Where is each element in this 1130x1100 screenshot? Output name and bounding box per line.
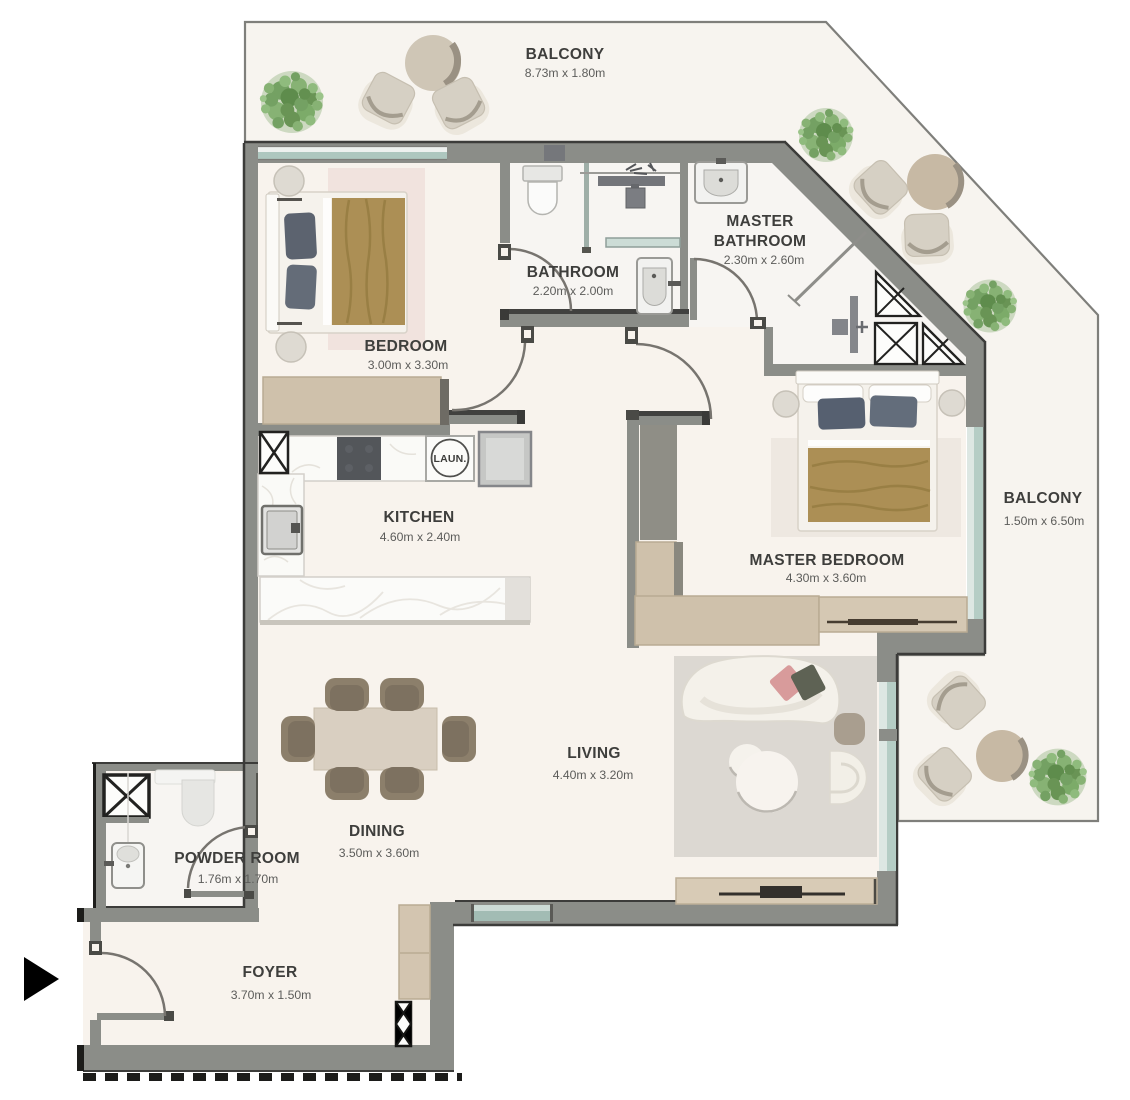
svg-text:LAUN.: LAUN.: [433, 453, 466, 465]
svg-text:BATHROOM: BATHROOM: [527, 264, 620, 281]
svg-text:1.76m x 1.70m: 1.76m x 1.70m: [198, 872, 279, 886]
svg-text:8.73m x 1.80m: 8.73m x 1.80m: [525, 66, 606, 80]
svg-text:DINING: DINING: [349, 823, 405, 840]
svg-text:4.60m x 2.40m: 4.60m x 2.40m: [380, 530, 461, 544]
svg-text:MASTER BEDROOM: MASTER BEDROOM: [750, 552, 905, 569]
svg-text:3.70m x 1.50m: 3.70m x 1.50m: [231, 988, 312, 1002]
svg-text:1.50m x 6.50m: 1.50m x 6.50m: [1004, 514, 1085, 528]
svg-text:BEDROOM: BEDROOM: [364, 338, 447, 355]
svg-text:4.30m x 3.60m: 4.30m x 3.60m: [786, 571, 867, 585]
svg-text:LIVING: LIVING: [567, 745, 620, 762]
svg-text:2.20m x 2.00m: 2.20m x 2.00m: [533, 284, 614, 298]
svg-text:POWDER ROOM: POWDER ROOM: [174, 850, 300, 867]
svg-text:4.40m x 3.20m: 4.40m x 3.20m: [553, 768, 634, 782]
svg-text:FOYER: FOYER: [243, 964, 298, 981]
svg-text:KITCHEN: KITCHEN: [384, 509, 455, 526]
svg-text:MASTER: MASTER: [726, 213, 793, 230]
svg-text:BALCONY: BALCONY: [526, 46, 605, 63]
svg-text:3.00m x 3.30m: 3.00m x 3.30m: [368, 358, 449, 372]
svg-text:2.30m x 2.60m: 2.30m x 2.60m: [724, 253, 805, 267]
svg-text:3.50m x 3.60m: 3.50m x 3.60m: [339, 846, 420, 860]
svg-text:BATHROOM: BATHROOM: [714, 233, 807, 250]
svg-text:BALCONY: BALCONY: [1004, 490, 1083, 507]
